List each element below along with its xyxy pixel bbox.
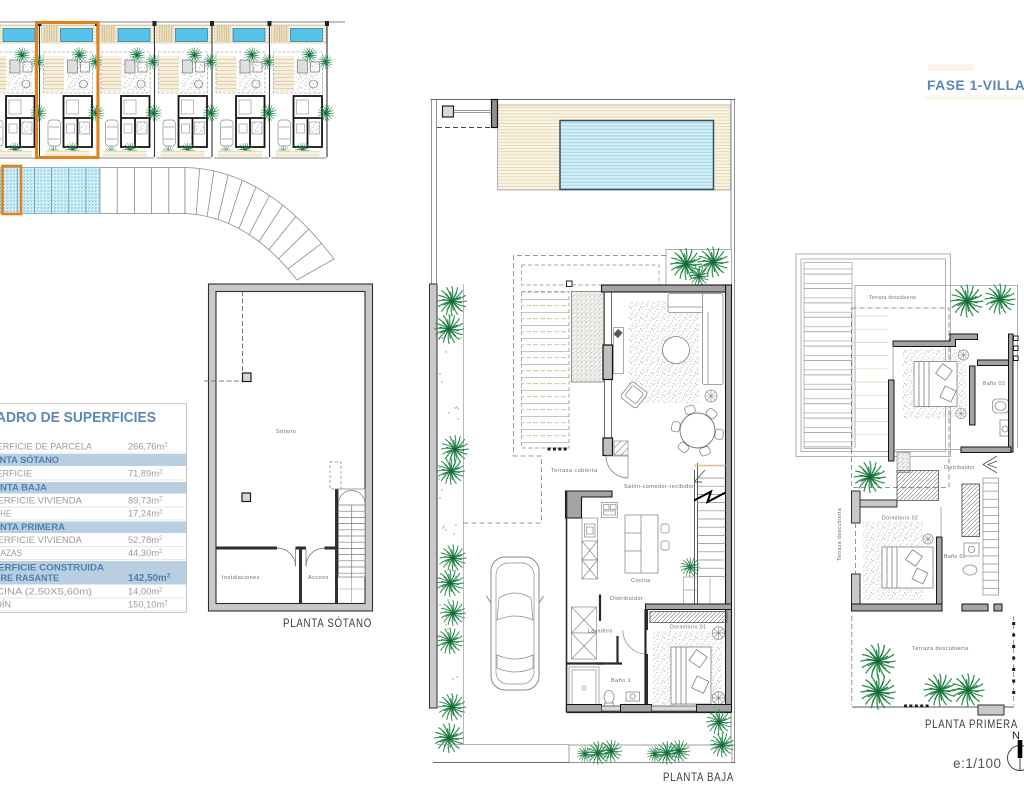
svg-text:PLANTA PRIMERA: PLANTA PRIMERA (925, 717, 1018, 731)
svg-text:150,10m2: 150,10m2 (128, 600, 168, 610)
svg-text:JARDÍN: JARDÍN (0, 600, 11, 610)
svg-text:PLANTA BAJA: PLANTA BAJA (0, 483, 47, 494)
svg-text:Baño 1: Baño 1 (611, 678, 631, 684)
svg-text:Sótano: Sótano (276, 429, 296, 435)
svg-text:SUPERFICIE: SUPERFICIE (0, 469, 32, 479)
svg-text:44,30m2: 44,30m2 (128, 548, 163, 558)
svg-text:PLANTA SÓTANO: PLANTA SÓTANO (0, 454, 59, 466)
svg-text:Terraza descubierta: Terraza descubierta (869, 295, 916, 301)
svg-text:Terraza cubierta: Terraza cubierta (551, 468, 598, 474)
svg-text:Cocina: Cocina (631, 578, 651, 584)
svg-text:CUADRO DE SUPERFICIES: CUADRO DE SUPERFICIES (0, 410, 156, 426)
svg-text:Dormitorio 02: Dormitorio 02 (882, 516, 918, 522)
svg-text:TERRAZAS: TERRAZAS (0, 548, 22, 558)
svg-text:N: N (1012, 730, 1020, 742)
svg-text:SUPERFICIE VIVIENDA: SUPERFICIE VIVIENDA (0, 535, 83, 545)
svg-text:SUPERFICIE VIVIENDA: SUPERFICIE VIVIENDA (0, 496, 83, 506)
svg-text:Acceso: Acceso (308, 575, 329, 581)
svg-text:PISCINA (2,50X5,60m): PISCINA (2,50X5,60m) (0, 587, 92, 597)
svg-text:SUPERFICIE CONSTRUIDA: SUPERFICIE CONSTRUIDA (0, 563, 104, 574)
svg-text:Terraza descubierta: Terraza descubierta (912, 646, 969, 652)
svg-text:52,78m2: 52,78m2 (128, 535, 163, 545)
svg-text:89,73m2: 89,73m2 (128, 496, 163, 506)
svg-text:SUPERFICIE DE PARCELA: SUPERFICIE DE PARCELA (0, 442, 93, 452)
svg-text:e:1/100: e:1/100 (953, 756, 1002, 771)
svg-text:Distribuidor: Distribuidor (944, 465, 975, 471)
svg-text:Distribuidor: Distribuidor (610, 596, 643, 602)
svg-text:PLANTA BAJA: PLANTA BAJA (663, 770, 734, 784)
svg-text:SOBRE RASANTE: SOBRE RASANTE (0, 573, 59, 584)
svg-text:Instalaciones: Instalaciones (222, 575, 260, 581)
svg-text:142,50m2: 142,50m2 (128, 573, 171, 585)
svg-text:PLANTA PRIMERA: PLANTA PRIMERA (0, 522, 65, 533)
svg-text:Baño 02: Baño 02 (944, 554, 966, 560)
svg-text:FASE 1-VILLAS: FASE 1-VILLAS (927, 77, 1024, 93)
svg-text:Lavadero: Lavadero (588, 629, 613, 635)
svg-text:PORCHE: PORCHE (0, 509, 11, 519)
svg-text:17,24m2: 17,24m2 (128, 509, 163, 519)
svg-text:Salón-comedor-recibidor: Salón-comedor-recibidor (624, 484, 694, 490)
svg-text:14,00m2: 14,00m2 (128, 587, 163, 597)
svg-text:PLANTA SÓTANO: PLANTA SÓTANO (283, 615, 372, 630)
svg-text:Baño 03: Baño 03 (983, 381, 1005, 387)
svg-text:71,89m2: 71,89m2 (128, 469, 163, 479)
svg-text:Terraza descubierta: Terraza descubierta (837, 508, 843, 561)
svg-text:266,76m2: 266,76m2 (128, 442, 168, 452)
svg-text:Dormitorio 01: Dormitorio 01 (670, 625, 706, 631)
